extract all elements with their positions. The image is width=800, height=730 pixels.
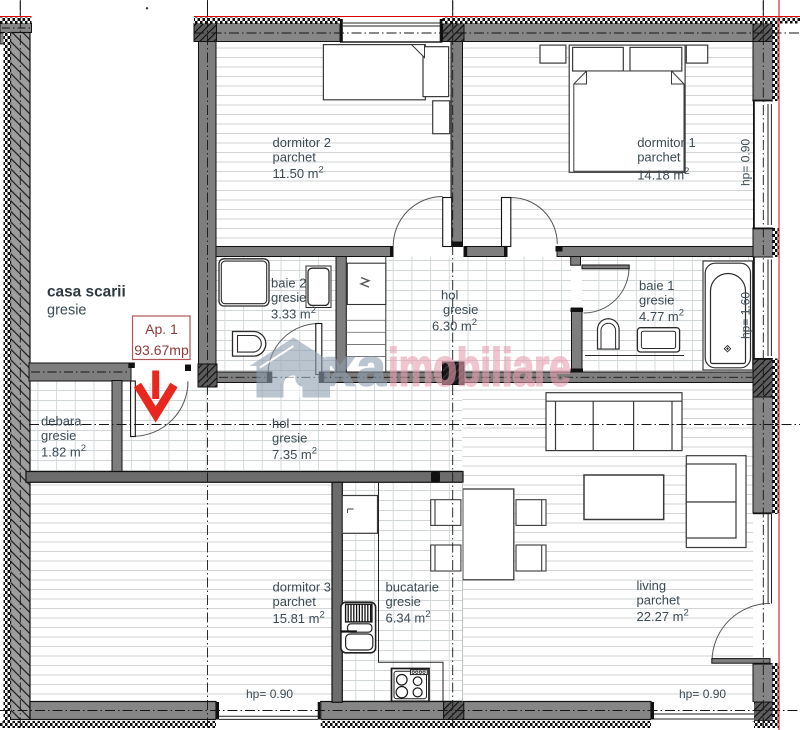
svg-text:hol: hol bbox=[272, 416, 289, 431]
svg-text:4.77 m2: 4.77 m2 bbox=[639, 308, 684, 325]
svg-text:parchet: parchet bbox=[637, 150, 681, 165]
svg-text:hp= 0.90: hp= 0.90 bbox=[739, 139, 753, 186]
svg-text:parchet: parchet bbox=[273, 594, 317, 609]
svg-text:casa scarii: casa scarii bbox=[47, 284, 126, 301]
svg-text:Ap. 1: Ap. 1 bbox=[145, 321, 178, 337]
svg-text:14.18 m2: 14.18 m2 bbox=[637, 166, 689, 183]
svg-text:gresie: gresie bbox=[272, 430, 307, 445]
svg-text:gresie: gresie bbox=[271, 290, 306, 305]
svg-text:22.27 m2: 22.27 m2 bbox=[637, 608, 689, 625]
svg-text:living: living bbox=[637, 578, 667, 593]
svg-text:gresie: gresie bbox=[443, 302, 478, 317]
svg-text:hp= 1.60: hp= 1.60 bbox=[739, 292, 753, 339]
svg-text:1.82 m2: 1.82 m2 bbox=[41, 443, 86, 460]
svg-text:debara: debara bbox=[41, 413, 82, 428]
svg-text:baie 1: baie 1 bbox=[639, 278, 674, 293]
svg-text:dormitor 2: dormitor 2 bbox=[273, 135, 332, 150]
svg-text:gresie: gresie bbox=[639, 293, 674, 308]
svg-text:dormitor 3: dormitor 3 bbox=[273, 580, 332, 595]
svg-text:axa: axa bbox=[295, 339, 388, 398]
svg-text:hp= 0.90: hp= 0.90 bbox=[679, 687, 726, 701]
svg-text:gresie: gresie bbox=[41, 428, 76, 443]
svg-text:parchet: parchet bbox=[273, 149, 317, 164]
svg-text:11.50 m2: 11.50 m2 bbox=[273, 165, 324, 182]
svg-text:7.35 m2: 7.35 m2 bbox=[272, 446, 317, 463]
svg-text:6.30 m2: 6.30 m2 bbox=[432, 317, 477, 334]
svg-text:15.81 m2: 15.81 m2 bbox=[273, 609, 325, 626]
svg-text:gresie: gresie bbox=[47, 303, 87, 319]
svg-text:imobiliare: imobiliare bbox=[388, 338, 571, 397]
svg-text:93.67mp: 93.67mp bbox=[134, 342, 189, 358]
svg-text:6.34 m2: 6.34 m2 bbox=[386, 609, 431, 626]
svg-text:hol: hol bbox=[441, 288, 458, 303]
svg-text:3.33 m2: 3.33 m2 bbox=[271, 305, 316, 322]
svg-text:baie 2: baie 2 bbox=[271, 275, 306, 290]
svg-text:gresie: gresie bbox=[386, 594, 421, 609]
svg-text:dormitor 1: dormitor 1 bbox=[637, 135, 696, 150]
svg-text:parchet: parchet bbox=[637, 592, 681, 607]
svg-text:bucatarie: bucatarie bbox=[386, 579, 439, 594]
svg-text:hp= 0.90: hp= 0.90 bbox=[246, 687, 293, 701]
